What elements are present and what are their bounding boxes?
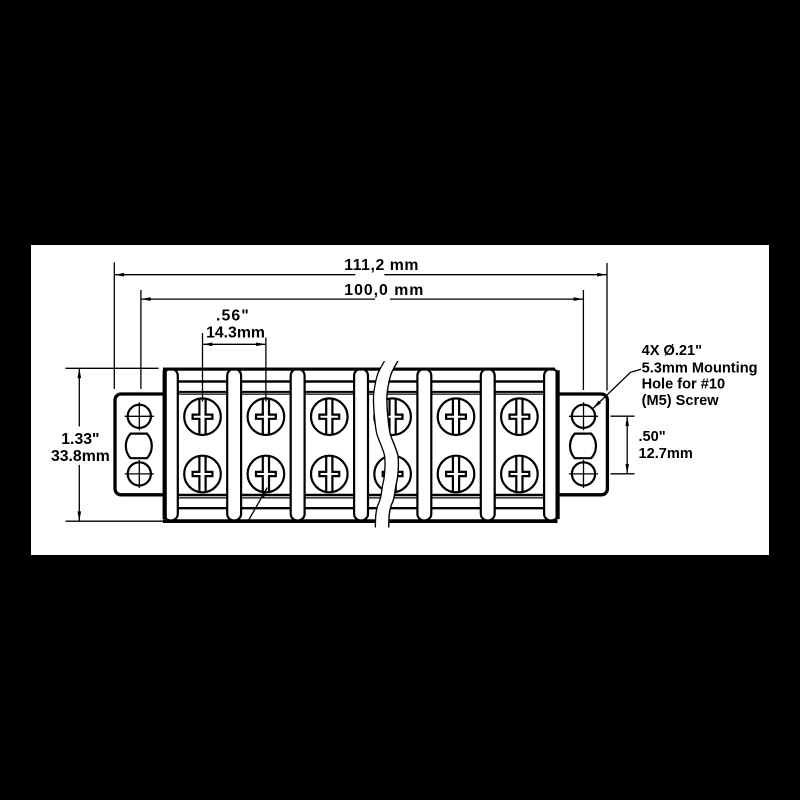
svg-text:5.3mm Mounting: 5.3mm Mounting xyxy=(642,360,758,376)
svg-text:.56": .56" xyxy=(216,307,250,324)
svg-text:14.3mm: 14.3mm xyxy=(206,325,265,342)
svg-text:100,0 mm: 100,0 mm xyxy=(344,282,424,299)
svg-text:111,2 mm: 111,2 mm xyxy=(344,257,419,274)
svg-text:33.8mm: 33.8mm xyxy=(51,448,110,465)
svg-text:Hole for #10: Hole for #10 xyxy=(642,377,726,393)
svg-text:12.7mm: 12.7mm xyxy=(639,446,693,462)
svg-text:.50": .50" xyxy=(639,429,666,445)
svg-text:1.33": 1.33" xyxy=(61,431,99,448)
svg-text:(M5) Screw: (M5) Screw xyxy=(642,393,720,409)
svg-text:4X Ø.21": 4X Ø.21" xyxy=(642,343,702,359)
